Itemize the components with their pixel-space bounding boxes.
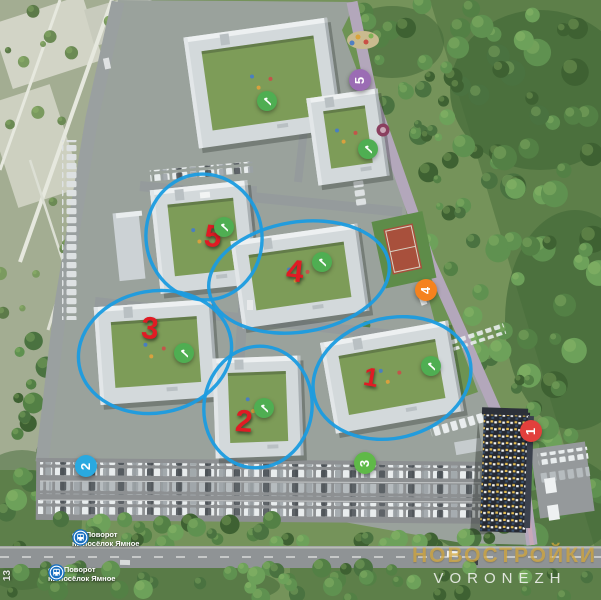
building-number-2: 2 [234,405,253,437]
route-badge-5: 5 [349,69,371,91]
bus-stop-label-2: ост. Поворотна посёлок Ямное [48,564,115,583]
completed-check-7: ✓ [421,356,441,376]
route-badge-3: 3 [354,452,376,474]
completed-check-2: ✓ [358,139,378,159]
check-icon: ✓ [315,256,329,268]
bus-stop-label-1: ост.Поворотна посёлок Ямное [72,529,139,548]
route-badge-1: 1 [520,420,542,442]
bus-stop-icon [48,564,65,581]
building-number-1: 1 [362,363,381,391]
route-badge-number: 3 [358,459,371,466]
completed-check-6: ✓ [254,398,274,418]
masterplan-map: 1234512345✓✓✓✓✓✓✓ост.Поворотна посёлок Я… [0,0,601,600]
completed-check-4: ✓ [312,252,332,272]
route-badge-number: 4 [419,286,432,293]
watermark-brand: НОВОСТРОЙКИ [412,544,588,568]
route-badge-2: 2 [75,455,97,477]
watermark-city: VORONEZH [427,570,573,587]
bus-stop-icon [72,529,89,546]
completed-check-1: ✓ [257,91,277,111]
route-badge-number: 5 [353,76,366,83]
completed-check-5: ✓ [174,343,194,363]
route-badge-4: 4 [415,279,437,301]
route-badge-number: 2 [79,462,92,469]
check-icon: ✓ [361,143,375,155]
page-number: 13 [2,570,13,581]
check-icon: ✓ [257,402,271,414]
building-number-3: 3 [140,312,159,344]
check-icon: ✓ [260,95,274,107]
building-number-4: 4 [285,255,305,288]
check-icon: ✓ [217,221,231,233]
completed-check-3: ✓ [214,217,234,237]
route-badge-number: 1 [524,427,537,434]
check-icon: ✓ [177,347,191,359]
check-icon: ✓ [424,360,438,372]
marker-layer: 1234512345✓✓✓✓✓✓✓ост.Поворотна посёлок Я… [0,0,601,600]
